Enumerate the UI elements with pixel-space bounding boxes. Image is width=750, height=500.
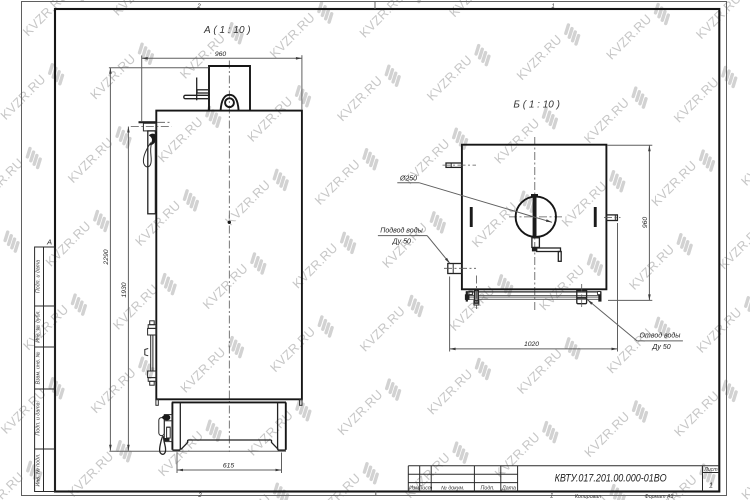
svg-text:Взам. инв. №: Взам. инв. № (36, 351, 42, 384)
svg-text:Подп. и дата: Подп. и дата (36, 402, 42, 435)
svg-text:1020: 1020 (524, 341, 539, 348)
svg-text:А ( 1 : 10 ): А ( 1 : 10 ) (203, 25, 251, 36)
svg-text:960: 960 (215, 51, 227, 58)
svg-text:Инв. № дубл.: Инв. № дубл. (36, 310, 42, 343)
svg-text:Подп. и дата: Подп. и дата (36, 260, 42, 293)
svg-text:Ду 50: Ду 50 (651, 344, 670, 351)
svg-text:Подп.: Подп. (481, 485, 495, 491)
svg-text:Ø250: Ø250 (399, 176, 417, 183)
svg-text:Лист: Лист (703, 467, 718, 473)
svg-text:Отвод воды: Отвод воды (640, 332, 682, 340)
svg-text:960: 960 (642, 217, 649, 229)
svg-text:2: 2 (196, 4, 201, 10)
svg-text:1930: 1930 (121, 282, 128, 297)
svg-text:Подвод воды: Подвод воды (380, 227, 423, 235)
svg-text:2: 2 (197, 493, 202, 499)
svg-text:Формат А3: Формат А3 (645, 494, 674, 500)
svg-text:КВТУ.017.201.00.000-01ВО: КВТУ.017.201.00.000-01ВО (555, 473, 667, 485)
svg-text:615: 615 (223, 463, 235, 470)
svg-text:Ду 50: Ду 50 (392, 239, 411, 246)
svg-text:Дата: Дата (501, 485, 516, 491)
svg-text:Лист: Лист (418, 485, 433, 491)
svg-text:1: 1 (709, 481, 713, 490)
svg-text:1: 1 (550, 494, 553, 500)
svg-text:1: 1 (551, 4, 554, 10)
svg-text:Б ( 1 : 10 ): Б ( 1 : 10 ) (513, 100, 560, 111)
svg-text:№ докум.: № докум. (441, 485, 464, 491)
svg-text:Копировал: Копировал (575, 494, 601, 500)
svg-text:2290: 2290 (103, 249, 110, 265)
svg-text:Инв. № подл.: Инв. № подл. (36, 454, 42, 487)
svg-text:А: А (46, 238, 52, 247)
